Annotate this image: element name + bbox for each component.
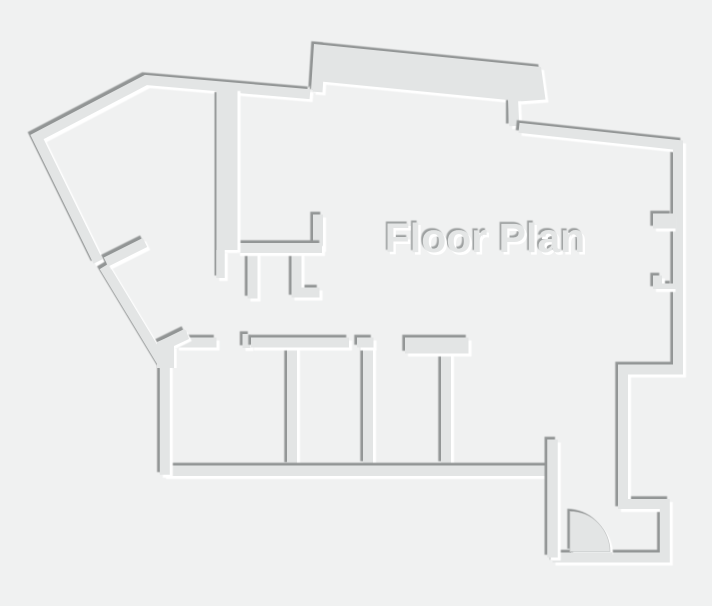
svg-text:Floor Plan: Floor Plan [385, 215, 585, 261]
